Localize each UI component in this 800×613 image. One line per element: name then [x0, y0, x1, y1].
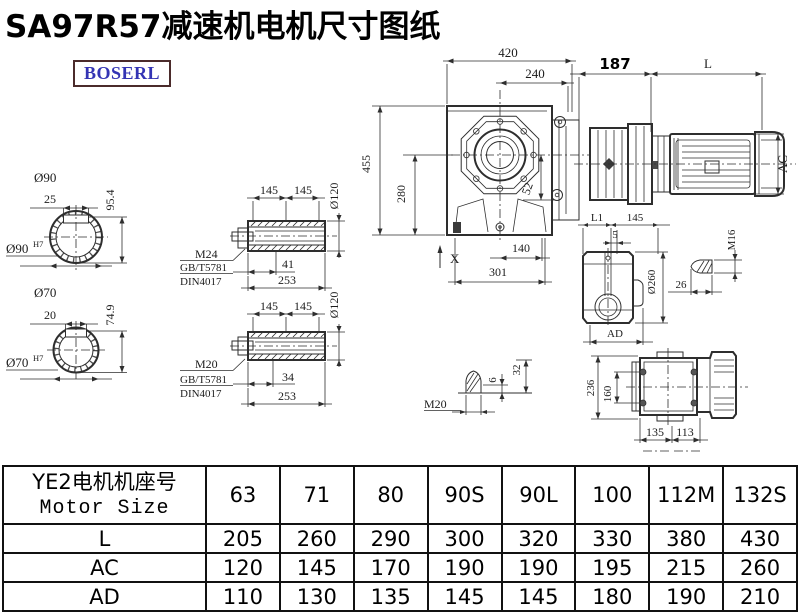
shaft-bot-fit-tol: H7 [33, 353, 43, 363]
row-label-L: L [3, 524, 206, 553]
table-header-cn: YE2电机机座号 [4, 469, 205, 495]
cell-AC-80: 170 [354, 553, 428, 582]
shaft-top-fit-label: Ø90 [6, 241, 28, 256]
brand-logo: BOSERL [73, 60, 171, 87]
front-offset-label: 52 [519, 181, 536, 197]
table-row-AC: AC 120 145 170 190 190 195 215 260 [3, 553, 797, 582]
hollow-bot-thread: M20 [195, 357, 218, 371]
bolt-m16-thread-label: M16 [726, 229, 738, 250]
col-header-80: 80 [354, 466, 428, 524]
motor-dimension-table: YE2电机机座号 Motor Size 63 71 80 90S 90L 100… [2, 465, 798, 612]
shaft-bot-height-label: 74.9 [103, 305, 117, 326]
side-ad-label: AD [607, 328, 623, 340]
col-header-100: 100 [575, 466, 649, 524]
bottom-spacing-label: 160 [602, 385, 614, 402]
front-base-label: 301 [489, 265, 507, 279]
shaft-top-key-label: 25 [44, 192, 56, 206]
cell-L-112m: 380 [649, 524, 723, 553]
front-height-label: 455 [359, 155, 373, 173]
col-header-71: 71 [280, 466, 354, 524]
page-title: SA97R57减速机电机尺寸图纸 [5, 1, 440, 46]
cell-L-100: 330 [575, 524, 649, 553]
cell-AD-90s: 145 [428, 582, 502, 611]
hollow-top-dia: Ø120 [327, 183, 341, 210]
cell-AD-100: 180 [575, 582, 649, 611]
table-row-L: L 205 260 290 300 320 330 380 430 [3, 524, 797, 553]
cell-AC-132s: 260 [723, 553, 797, 582]
row-label-AD: AD [3, 582, 206, 611]
hollow-bot-std2: DIN4017 [180, 388, 222, 400]
cell-AD-80: 135 [354, 582, 428, 611]
hollow-bot-l1: 145 [260, 299, 278, 313]
hollow-top-std2: DIN4017 [180, 276, 222, 288]
col-header-112m: 112M [649, 466, 723, 524]
cell-AC-90s: 190 [428, 553, 502, 582]
front-foot-label: 140 [512, 241, 530, 255]
row-label-AC: AC [3, 553, 206, 582]
hollow-top-depth: 41 [282, 257, 294, 271]
hollow-bot-std1: GB/T5781 [180, 374, 227, 386]
bolt-m20-d32-label: 32 [511, 365, 523, 376]
hollow-top-l1: 145 [260, 183, 278, 197]
shaft-top-height-label: 95.4 [103, 190, 117, 211]
cell-AC-100: 195 [575, 553, 649, 582]
col-header-90l: 90L [502, 466, 576, 524]
hollow-bot-total: 253 [278, 389, 296, 403]
cell-L-90l: 320 [502, 524, 576, 553]
hollow-top-thread: M24 [195, 247, 218, 261]
shaft-top-fit-tol: H7 [33, 239, 43, 249]
bolt-m20-thread-label: M20 [424, 397, 447, 411]
motor-length-label: L [704, 56, 712, 71]
motor-adapter-label: 187 [599, 55, 630, 73]
front-lowerheight-label: 280 [394, 185, 408, 203]
shaft-bot-key-label: 20 [44, 308, 56, 322]
front-topwidth-label: 240 [525, 66, 545, 81]
bottom-left-label: 135 [646, 425, 664, 439]
bottom-height-label: 236 [585, 379, 597, 396]
cell-L-132s: 430 [723, 524, 797, 553]
cell-AD-63: 110 [206, 582, 280, 611]
shaft-bot-fit-label: Ø70 [6, 355, 28, 370]
col-header-63: 63 [206, 466, 280, 524]
side-145-label: 145 [627, 212, 644, 224]
table-header-motor-size: YE2电机机座号 Motor Size [3, 466, 206, 524]
cell-AD-71: 130 [280, 582, 354, 611]
shaft-bot-dia-label: Ø70 [34, 285, 56, 300]
hollow-bot-l2: 145 [294, 299, 312, 313]
front-width-label: 420 [498, 45, 518, 60]
cell-AC-71: 145 [280, 553, 354, 582]
bolt-m16-length-label: 26 [676, 279, 688, 291]
cell-AC-63: 120 [206, 553, 280, 582]
view-gearbox-bottom: 236 160 135 113 [588, 348, 800, 460]
col-header-90s: 90S [428, 466, 502, 524]
drawing-sheet: SA97R57减速机电机尺寸图纸 BOSERL Ø90 25 95.4 Ø90 … [0, 0, 800, 613]
cell-AD-90l: 145 [502, 582, 576, 611]
table-row-AD: AD 110 130 135 145 145 180 190 210 [3, 582, 797, 611]
view-hollow-shaft-bottom: 145 145 Ø120 M20 GB/T5781 DIN4017 34 253 [175, 293, 410, 428]
bolt-m20-d6-label: 6 [487, 377, 499, 383]
view-shaft-end-top: Ø90 25 95.4 Ø90 H7 [0, 160, 168, 300]
view-bolt-m16: M16 26 [660, 222, 800, 307]
hollow-bot-depth: 34 [282, 370, 294, 384]
side-l1-label: L1 [591, 212, 603, 224]
col-header-132s: 132S [723, 466, 797, 524]
side-dia-label: Ø260 [646, 269, 658, 294]
cell-L-63: 205 [206, 524, 280, 553]
hollow-top-l2: 145 [294, 183, 312, 197]
view-bolt-m20: M20 6 32 [420, 340, 590, 450]
cell-L-80: 290 [354, 524, 428, 553]
view-shaft-end-bottom: Ø70 20 74.9 Ø70 H7 [0, 283, 168, 418]
view-gearbox-front: 420 240 455 280 [358, 42, 603, 304]
cell-AC-90l: 190 [502, 553, 576, 582]
cell-AC-112m: 215 [649, 553, 723, 582]
table-header-en: Motor Size [4, 496, 205, 521]
cell-AD-112m: 190 [649, 582, 723, 611]
brand-logo-text: BOSERL [84, 63, 160, 84]
hollow-top-std1: GB/T5781 [180, 262, 227, 274]
hollow-bot-dia: Ø120 [327, 292, 341, 319]
cell-AD-132s: 210 [723, 582, 797, 611]
cell-L-90s: 300 [428, 524, 502, 553]
hollow-top-total: 253 [278, 273, 296, 287]
cell-L-71: 260 [280, 524, 354, 553]
shaft-top-dia-label: Ø90 [34, 170, 56, 185]
bottom-right-label: 113 [676, 425, 694, 439]
